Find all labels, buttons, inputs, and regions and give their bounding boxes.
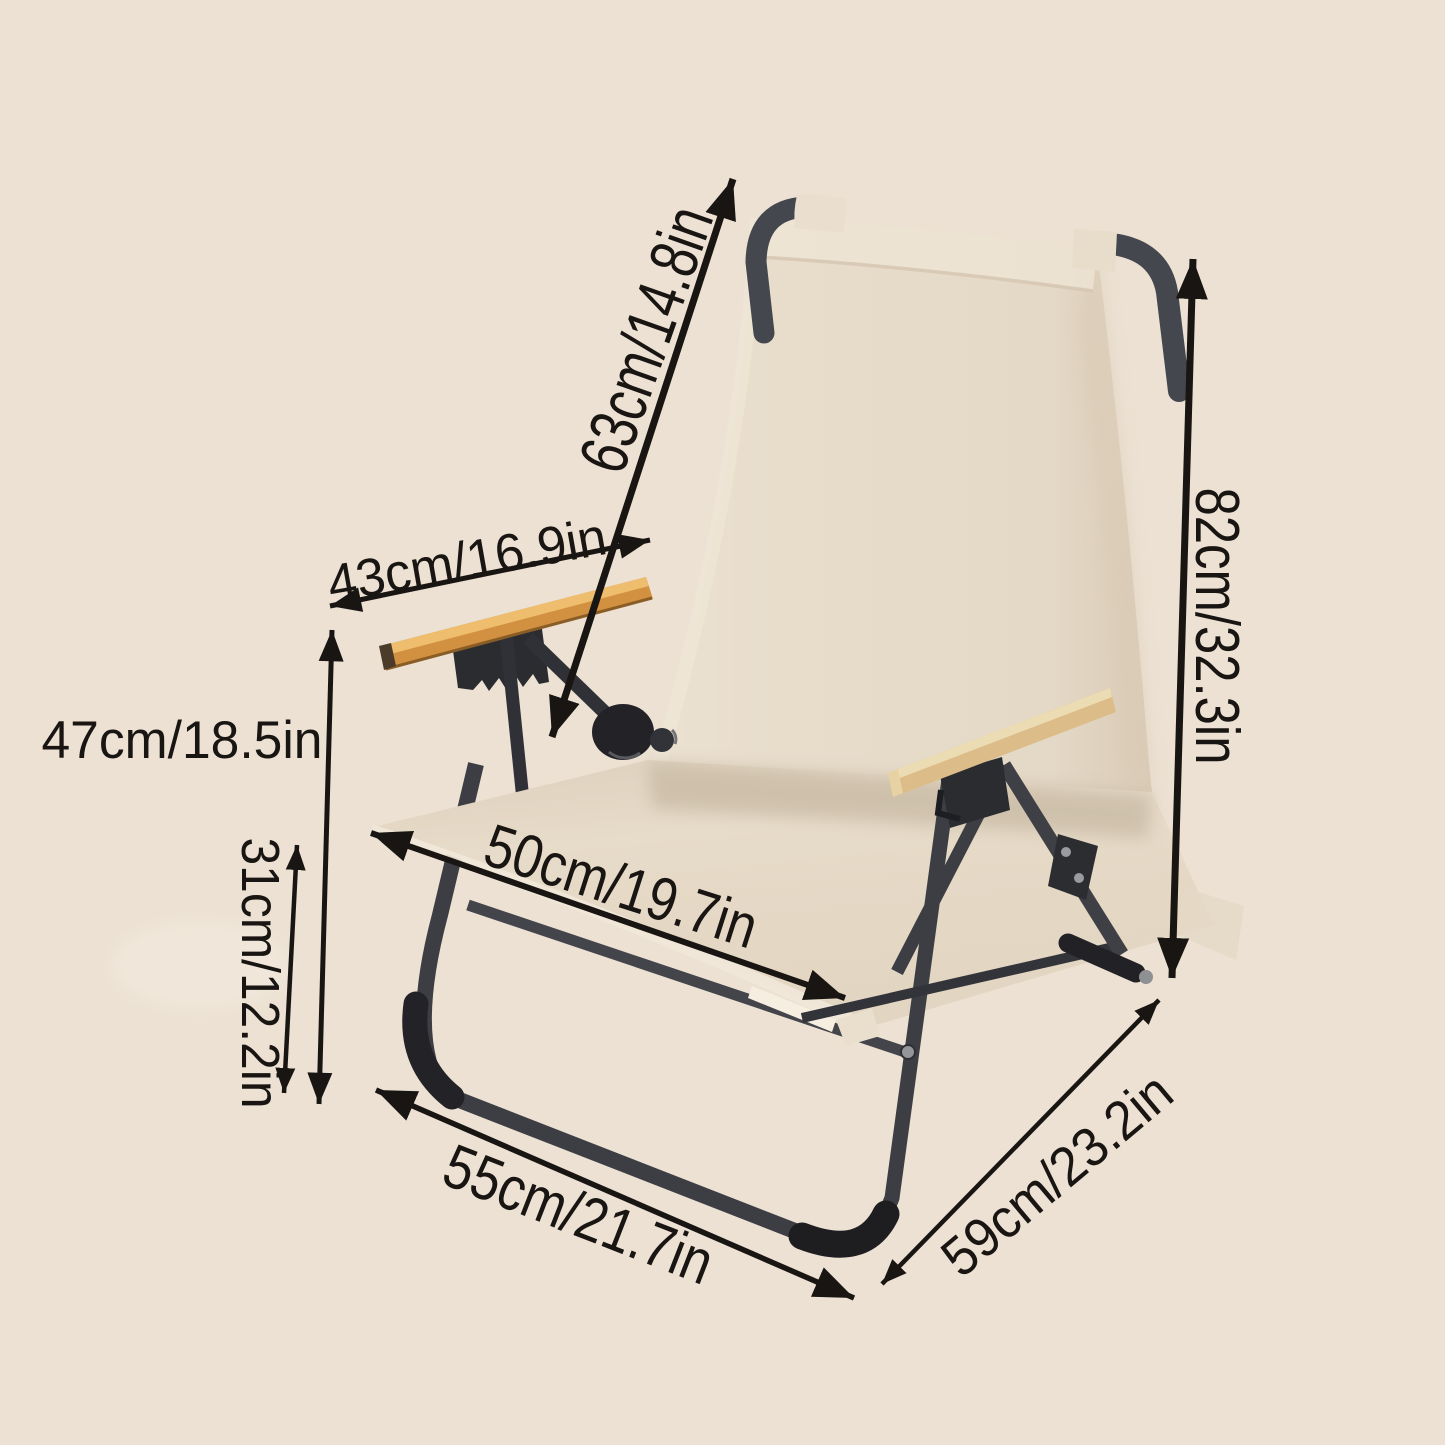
svg-text:82cm/32.3in: 82cm/32.3in [1182, 488, 1251, 765]
svg-text:31cm/12.2in: 31cm/12.2in [230, 838, 290, 1109]
svg-text:47cm/18.5in: 47cm/18.5in [42, 711, 323, 770]
